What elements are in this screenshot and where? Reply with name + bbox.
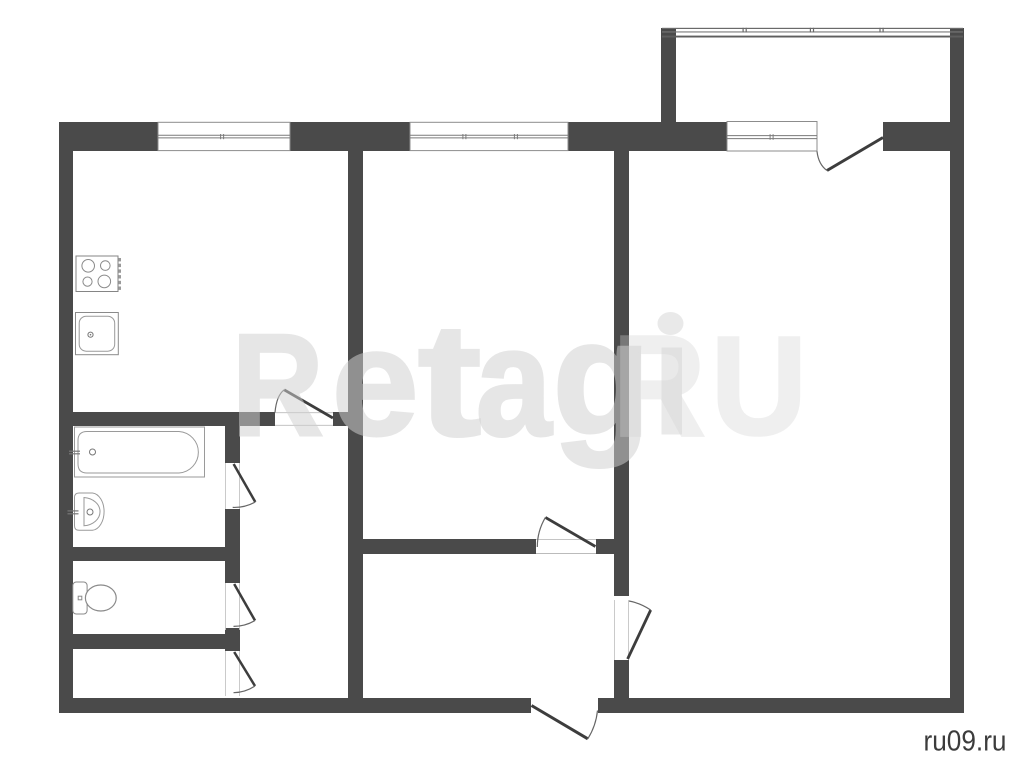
svg-text:R: R <box>232 304 324 466</box>
svg-text:U: U <box>711 307 807 464</box>
svg-text:ru09.ru: ru09.ru <box>924 726 1007 758</box>
svg-text:t: t <box>418 291 481 470</box>
svg-text:e: e <box>332 297 419 467</box>
svg-text:a: a <box>476 295 553 468</box>
svg-text:R: R <box>613 306 705 466</box>
